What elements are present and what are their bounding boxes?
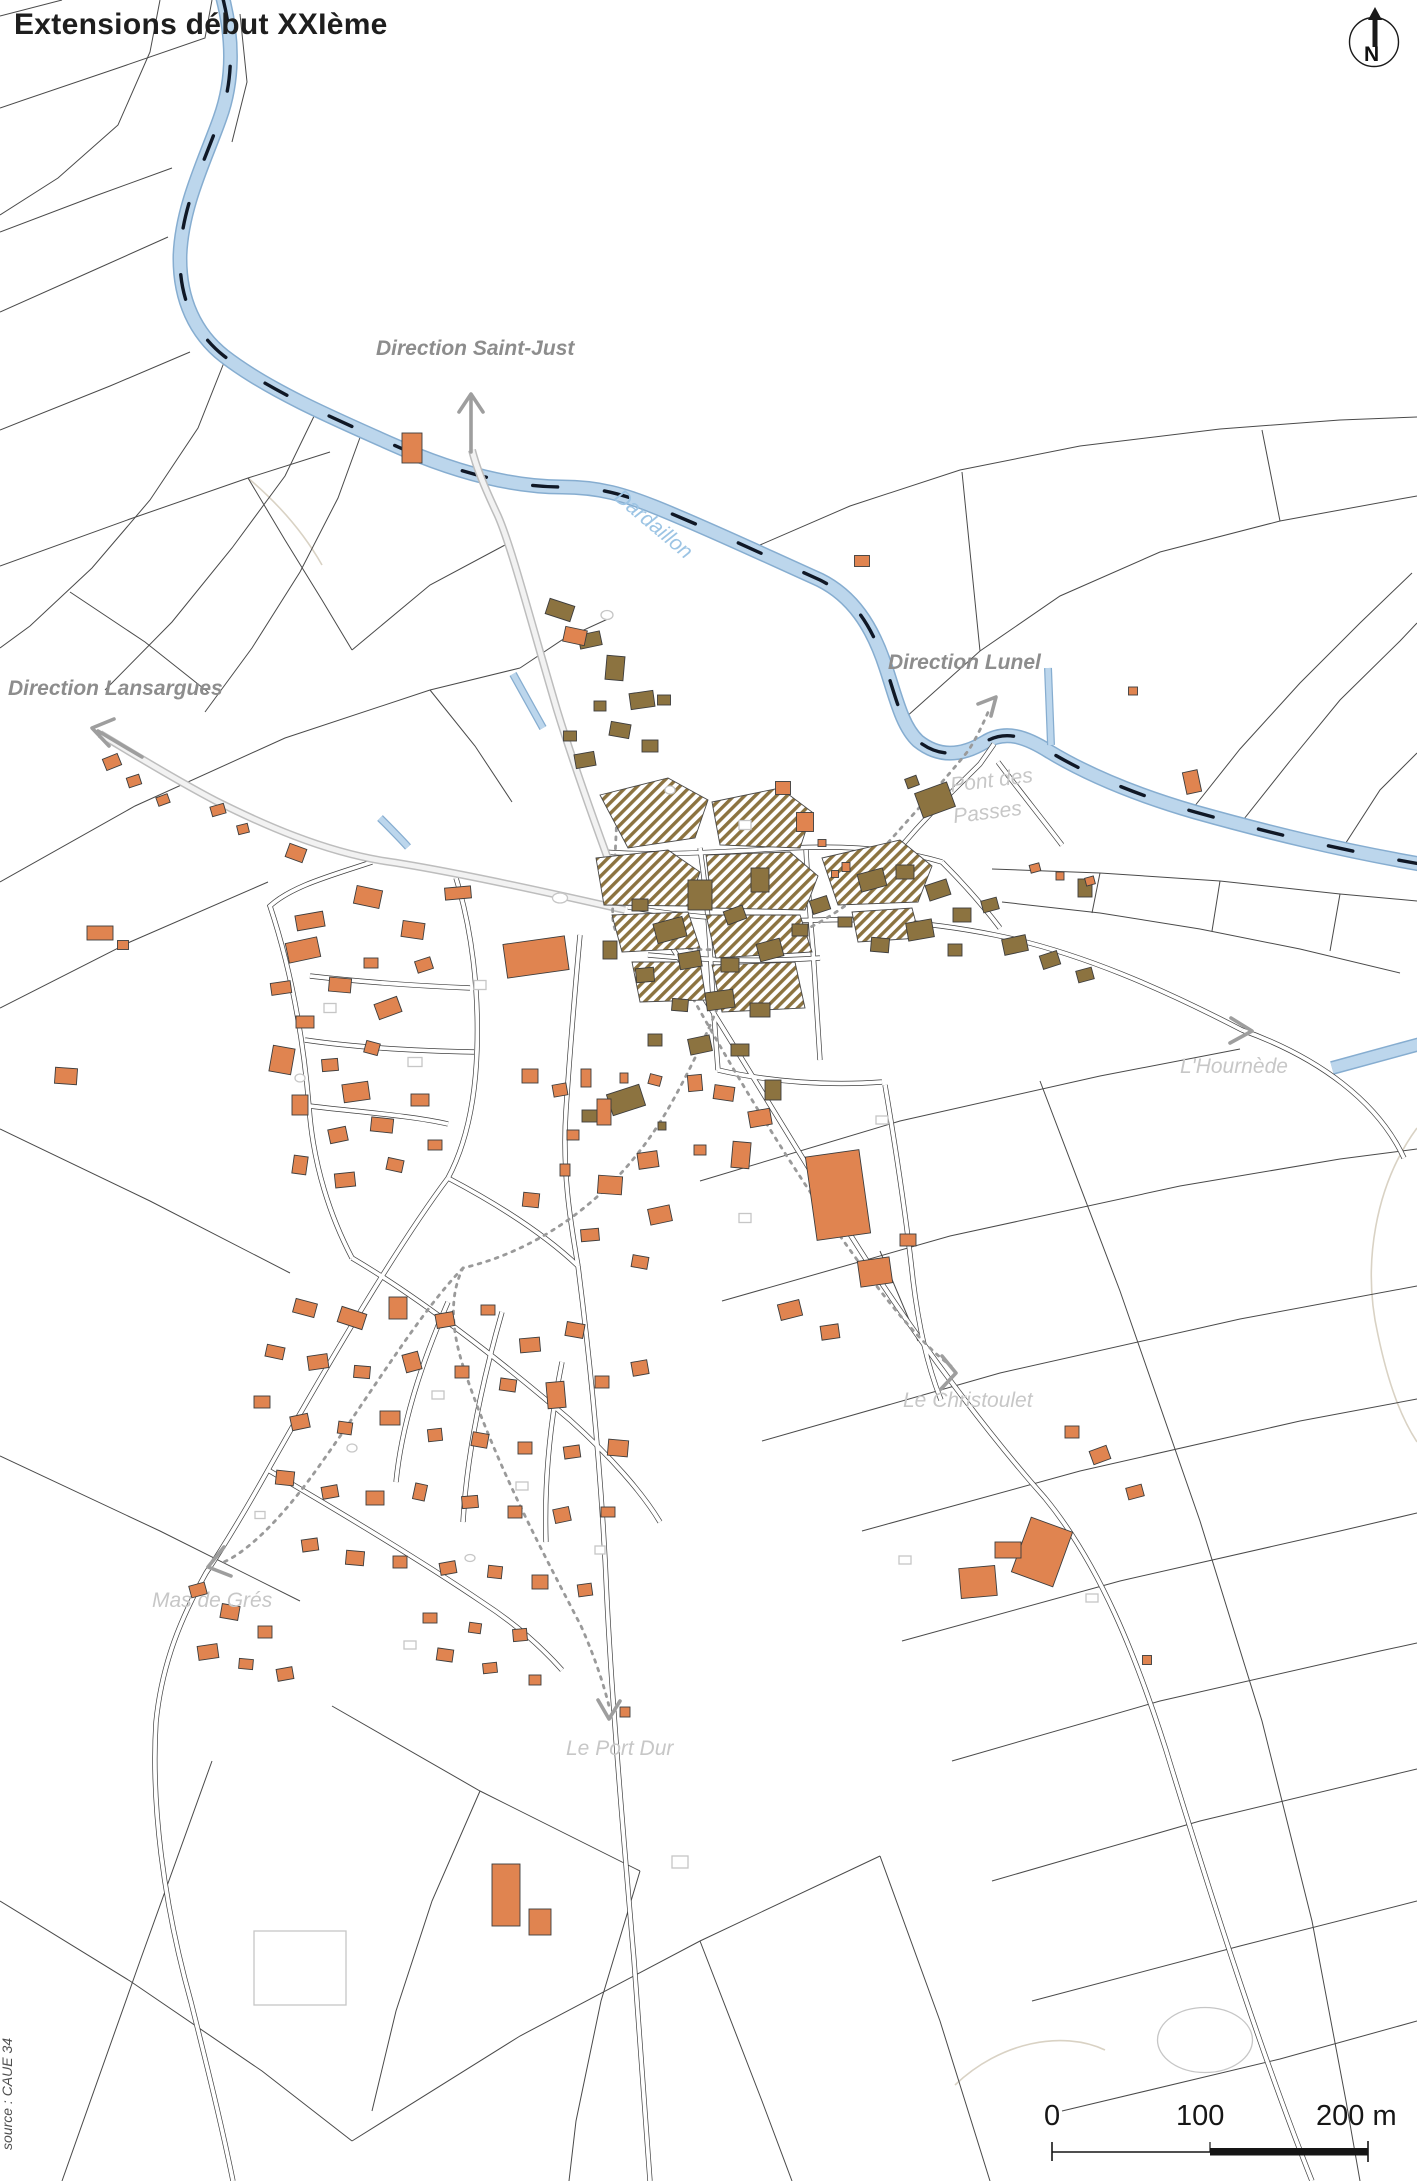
extension-building — [269, 1045, 295, 1074]
scale-label-0: 0 — [1044, 2102, 1060, 2131]
extension-building — [607, 1439, 628, 1457]
source-credit: source : CAUE 34 — [0, 2038, 14, 2150]
existing-building — [705, 989, 735, 1011]
extension-building — [258, 1626, 272, 1638]
label-christoulet: Le Christoulet — [903, 1390, 1033, 1411]
annex-outline — [254, 1931, 346, 2005]
parcel-line — [352, 1856, 880, 2141]
extension-building — [54, 1067, 77, 1084]
existing-building — [672, 998, 689, 1011]
minor-road-casing — [448, 1178, 578, 1266]
annex-outline — [1086, 1594, 1098, 1602]
parcel-line — [1330, 894, 1340, 951]
extension-building — [415, 957, 434, 973]
parcel-line — [372, 1791, 480, 2111]
extension-building — [567, 1130, 579, 1140]
label-mas-de-gres: Mas de Grés — [152, 1590, 272, 1611]
extension-building — [842, 863, 850, 872]
direction-arrow-layer — [92, 394, 1252, 1719]
existing-building — [594, 701, 606, 711]
extension-building — [1056, 872, 1064, 880]
extension-building — [713, 1085, 735, 1102]
extension-building — [563, 1445, 581, 1459]
extension-building — [481, 1305, 495, 1315]
existing-building — [632, 899, 648, 911]
parcel-line — [332, 1706, 640, 1871]
extension-building — [328, 1126, 349, 1143]
existing-building — [609, 721, 631, 738]
extension-building — [468, 1622, 481, 1634]
extension-building — [483, 1662, 498, 1673]
parcel-line — [1212, 881, 1220, 931]
extension-building — [292, 1155, 308, 1175]
parcel-line — [0, 882, 268, 1008]
parcel-line — [0, 360, 225, 648]
scale-label-100: 100 — [1176, 2102, 1224, 2131]
annex-outline — [432, 1391, 444, 1399]
extension-building — [370, 1117, 393, 1133]
parcel-line — [880, 1856, 990, 2181]
contour-line — [955, 2041, 1105, 2085]
existing-building — [606, 1084, 645, 1115]
extension-building — [818, 840, 826, 847]
existing-building — [564, 731, 577, 741]
extension-building — [857, 1257, 892, 1287]
label-port-dur: Le Port Dur — [566, 1738, 673, 1759]
extension-building — [522, 1192, 539, 1208]
existing-building — [648, 1034, 662, 1046]
extension-building — [797, 813, 814, 832]
extension-building — [532, 1575, 548, 1589]
annex-outline — [739, 821, 751, 830]
existing-building — [1076, 967, 1095, 983]
extension-building — [648, 1074, 662, 1087]
extension-building — [529, 1675, 541, 1685]
extension-building — [597, 1099, 611, 1125]
extension-building — [553, 1506, 572, 1523]
scale-bar — [1052, 2141, 1368, 2162]
extension-building — [342, 1081, 370, 1102]
extension-building — [275, 1470, 294, 1486]
existing-building — [605, 655, 625, 680]
extension-building — [518, 1442, 532, 1454]
existing-building — [658, 1122, 666, 1130]
existing-building — [905, 775, 920, 789]
stream — [1048, 668, 1051, 745]
contour-line — [1371, 1128, 1417, 1442]
existing-building — [765, 1080, 781, 1100]
label-direction-lunel: Direction Lunel — [888, 652, 1041, 673]
parcel-line — [1340, 753, 1417, 852]
extension-building — [820, 1324, 840, 1340]
parcel-line — [962, 472, 980, 651]
extension-building — [855, 556, 870, 567]
annex-outline — [404, 1641, 416, 1649]
extension-building — [694, 1145, 706, 1155]
extension-building — [560, 1164, 570, 1176]
parcel-line — [952, 1643, 1417, 1761]
existing-building — [750, 1003, 770, 1017]
extension-building — [503, 936, 569, 978]
annex-outline — [465, 1555, 475, 1562]
parcel-line — [1190, 573, 1412, 812]
extension-building — [364, 958, 378, 968]
parcel-line — [430, 690, 512, 802]
extension-building — [492, 1864, 520, 1926]
existing-building — [642, 740, 658, 752]
extension-building — [435, 1312, 455, 1329]
extension-building — [487, 1565, 502, 1578]
extension-building — [776, 782, 791, 795]
extension-building — [270, 981, 291, 996]
parcel-line — [0, 168, 172, 232]
extension-building — [321, 1485, 339, 1500]
existing-building — [792, 924, 808, 936]
extension-building — [563, 626, 588, 645]
extension-building — [601, 1507, 615, 1517]
minor-road — [718, 1070, 882, 1084]
extension-building — [285, 937, 320, 963]
map-page: Extensions début XXIème Direction Saint-… — [0, 0, 1417, 2181]
historic-core-block — [596, 850, 700, 906]
extension-building — [959, 1565, 997, 1598]
existing-building — [948, 944, 962, 956]
extension-building — [620, 1707, 630, 1717]
extension-building — [337, 1421, 353, 1435]
extension-building — [322, 1058, 339, 1071]
parcel-line — [0, 1129, 290, 1273]
parcel-line — [105, 408, 318, 690]
extension-building — [197, 1644, 219, 1661]
extension-building — [285, 843, 307, 862]
extension-building — [210, 803, 226, 816]
parcel-line — [700, 1941, 792, 2181]
extension-building — [995, 1542, 1021, 1558]
extension-building — [581, 1228, 600, 1242]
annex-outline — [295, 1074, 305, 1082]
extension-building — [402, 433, 422, 463]
extension-building — [1065, 1426, 1079, 1438]
extension-building — [805, 1150, 870, 1241]
parcel-line — [700, 1049, 1240, 1181]
annex-outline — [255, 1512, 265, 1519]
parcel-line — [760, 417, 1417, 545]
existing-building — [545, 598, 575, 621]
direction-arrow — [459, 394, 483, 452]
label-hournede: L'Hournède — [1180, 1056, 1288, 1077]
extension-building — [239, 1658, 254, 1669]
extension-building — [354, 1365, 371, 1378]
extension-building — [386, 1157, 404, 1172]
extension-building — [777, 1300, 802, 1321]
minor-road — [578, 1266, 650, 2181]
stream — [513, 674, 543, 728]
extension-building — [366, 1491, 384, 1505]
extension-building — [307, 1354, 329, 1371]
existing-building — [809, 896, 830, 915]
parcel-line — [0, 237, 168, 312]
extension-building — [552, 1083, 568, 1097]
extension-building — [499, 1378, 517, 1392]
extension-building — [648, 1205, 673, 1225]
extension-building — [102, 753, 121, 770]
extension-building — [328, 977, 351, 993]
extension-building — [581, 1069, 591, 1087]
existing-building — [925, 879, 951, 901]
extension-building — [411, 1094, 429, 1106]
annex-outline — [595, 1546, 605, 1554]
extension-building — [292, 1095, 308, 1115]
annex-outline — [553, 893, 568, 903]
existing-building — [629, 690, 655, 709]
river-band — [1332, 1044, 1417, 1068]
existing-building — [582, 1110, 598, 1122]
extension-building — [455, 1366, 469, 1378]
extension-building — [597, 1175, 622, 1195]
extension-building — [731, 1141, 751, 1168]
existing-building — [870, 937, 889, 953]
minor-road-casing — [448, 878, 477, 1178]
annex-outline — [408, 1058, 422, 1067]
major-road — [100, 734, 625, 910]
existing-building — [635, 967, 654, 983]
existing-building — [751, 868, 769, 892]
extension-building — [427, 1428, 442, 1441]
extension-building — [445, 886, 472, 900]
parcel-line — [62, 1761, 212, 2181]
annex-outline — [324, 1004, 336, 1013]
existing-building — [981, 897, 1000, 913]
parcel-line — [905, 496, 1417, 718]
extension-building — [631, 1360, 649, 1377]
existing-building — [915, 782, 956, 818]
extension-building — [687, 1074, 702, 1091]
existing-building — [658, 695, 671, 705]
extension-building — [462, 1495, 479, 1508]
annex-outline — [899, 1556, 911, 1564]
extension-building — [265, 1344, 285, 1359]
extension-building — [87, 926, 113, 940]
contour-layer — [248, 478, 1417, 2085]
existing-building — [906, 919, 935, 941]
extension-building — [900, 1234, 916, 1246]
north-arrow-label: N — [1364, 44, 1379, 65]
extension-building — [412, 1483, 427, 1501]
label-direction-saint-just: Direction Saint-Just — [376, 338, 574, 359]
extension-building — [513, 1628, 528, 1641]
existing-building — [1039, 951, 1060, 970]
existing-building — [688, 1035, 713, 1055]
extension-building — [296, 1016, 314, 1028]
extension-building — [126, 774, 141, 788]
extension-building — [364, 1040, 381, 1055]
major-road-casing — [100, 734, 625, 910]
map-canvas — [0, 0, 1417, 2181]
extension-building — [402, 1351, 422, 1373]
extension-building — [1029, 863, 1041, 873]
extension-building — [508, 1506, 522, 1518]
extension-building — [334, 1172, 355, 1188]
minor-road — [155, 1178, 448, 2181]
extension-building — [546, 1381, 566, 1408]
existing-building — [838, 917, 852, 927]
extension-building — [529, 1909, 551, 1935]
existing-building — [721, 958, 739, 972]
extension-building — [1089, 1445, 1111, 1464]
extension-building — [471, 1432, 489, 1449]
extension-building — [295, 911, 325, 931]
extension-building — [748, 1108, 772, 1128]
extension-building — [1182, 770, 1201, 795]
existing-building — [603, 941, 617, 959]
extension-building — [832, 871, 839, 878]
extension-building — [393, 1556, 407, 1568]
stream — [380, 818, 408, 847]
extension-building — [595, 1376, 609, 1388]
extension-building — [1126, 1484, 1145, 1500]
parcel-line — [1236, 623, 1417, 829]
extension-building — [519, 1337, 540, 1353]
extension-building — [290, 1413, 311, 1430]
extension-building — [436, 1648, 454, 1662]
map-title: Extensions début XXIème — [14, 10, 388, 40]
extension-building — [374, 996, 402, 1019]
river-dardaillon — [180, 0, 1417, 864]
extension-building — [1129, 687, 1138, 695]
parcel-line — [0, 352, 190, 430]
existing-building — [678, 950, 702, 970]
extension-building — [1143, 1656, 1152, 1665]
extension-building — [620, 1073, 628, 1083]
parcel-line — [862, 1399, 1417, 1531]
parcel-line — [248, 478, 352, 650]
parcel-line — [0, 1456, 300, 1601]
parcel-line — [1002, 902, 1400, 973]
existing-building — [953, 908, 971, 922]
extension-building — [637, 1151, 659, 1170]
extension-building — [237, 823, 250, 834]
annex-outline — [516, 1482, 528, 1490]
label-direction-lansargues: Direction Lansargues — [8, 678, 223, 699]
parcel-line — [352, 545, 505, 650]
direction-arrow — [92, 719, 142, 757]
parcel-layer — [0, 0, 1417, 2181]
extension-building — [254, 1396, 270, 1408]
minor-road — [448, 878, 477, 1178]
annex-outline — [876, 1116, 888, 1124]
extension-building — [389, 1297, 407, 1319]
existing-building — [574, 751, 596, 768]
existing-building — [896, 865, 914, 879]
extension-building — [401, 921, 425, 940]
extension-building — [345, 1550, 364, 1566]
extension-building — [276, 1667, 294, 1682]
annex-outline — [1158, 2008, 1253, 2073]
extension-building — [577, 1583, 593, 1597]
existing-building — [688, 880, 712, 910]
extension-building — [565, 1322, 585, 1339]
extension-building — [439, 1561, 457, 1576]
parcel-line — [992, 1769, 1417, 1881]
extension-building — [631, 1255, 649, 1270]
annex-outline — [474, 981, 486, 990]
parcel-line — [0, 668, 520, 882]
annex-outline — [601, 611, 613, 620]
extension-building — [118, 941, 129, 950]
extension-building — [301, 1538, 319, 1552]
extension-building — [1085, 876, 1096, 886]
annex-outline — [665, 786, 675, 794]
extension-building — [423, 1613, 437, 1623]
annex-outline — [347, 1444, 357, 1452]
annex-outline — [672, 1856, 688, 1868]
annex-outline — [739, 1214, 751, 1223]
parcel-line — [205, 432, 362, 712]
contour-line — [248, 478, 322, 565]
extension-building — [293, 1298, 318, 1317]
extension-building — [380, 1411, 400, 1425]
extension-building — [353, 885, 382, 908]
parcel-line — [1032, 1901, 1417, 2001]
extension-building — [522, 1069, 538, 1083]
scale-label-200: 200 m — [1316, 2102, 1397, 2131]
parcel-line — [1262, 430, 1280, 521]
existing-building — [731, 1044, 749, 1056]
extension-building — [428, 1140, 442, 1150]
